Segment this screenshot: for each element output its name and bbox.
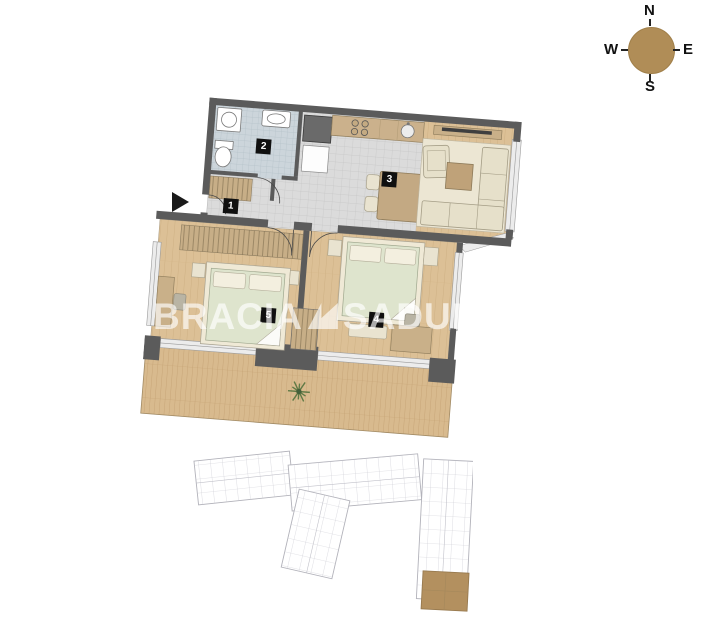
apartment-plan-drawing <box>137 92 528 470</box>
building-site-plan <box>188 432 473 632</box>
site-wing-left <box>194 451 294 505</box>
compass-tick-north <box>649 19 651 26</box>
nightstand <box>289 270 299 285</box>
nightstand <box>423 247 438 266</box>
nightstand <box>328 239 342 256</box>
room-label-2: 2 <box>255 138 271 154</box>
watermark-text-second: SADUR <box>343 296 480 337</box>
bathroom-sink <box>262 110 291 128</box>
compass-rose: N S W E <box>604 4 696 96</box>
nightstand <box>192 263 206 278</box>
apartment-floor-plan: 1 2 3 4 5 <box>137 92 528 470</box>
compass-tick-west <box>621 49 628 51</box>
duct-shaft <box>303 115 333 143</box>
floor-plan-page: { "compass": { "north": "N", "east": "E"… <box>0 0 711 634</box>
compass-label-west: W <box>604 41 618 58</box>
agency-logo-icon <box>308 303 338 329</box>
compass-label-east: E <box>683 41 693 58</box>
compass-label-south: S <box>645 78 655 95</box>
agency-watermark: BRACIASADUR <box>153 295 485 339</box>
compass-label-north: N <box>644 2 655 19</box>
armchair <box>423 145 450 178</box>
coffee-table <box>445 162 473 190</box>
hall-wardrobe <box>209 176 253 201</box>
site-plan-drawing <box>188 432 473 632</box>
watermark-text-first: BRACIA <box>153 296 303 337</box>
fridge <box>301 145 329 173</box>
compass-circle-icon <box>628 27 675 74</box>
site-highlighted-unit <box>421 571 469 611</box>
compass-tick-east <box>673 49 680 51</box>
room-label-3: 3 <box>381 171 397 187</box>
room-label-1: 1 <box>223 198 239 214</box>
washing-machine <box>216 107 242 132</box>
